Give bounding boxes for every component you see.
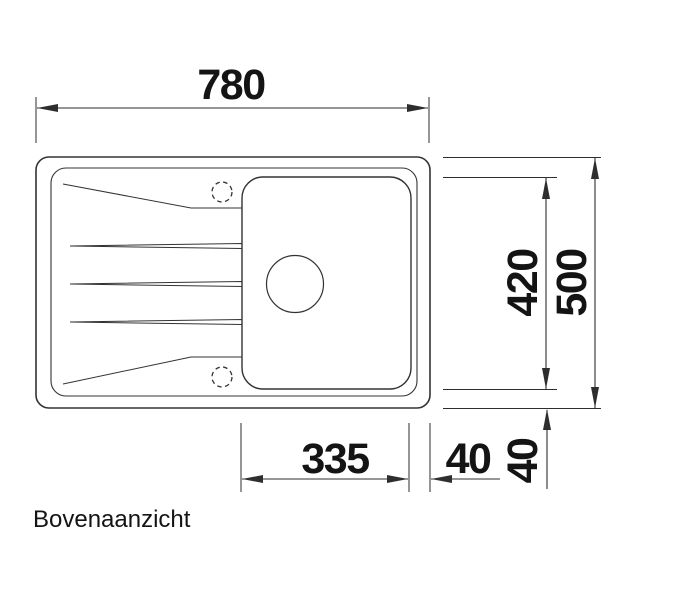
drain-hole xyxy=(267,256,324,313)
drainboard-grooves xyxy=(63,184,242,384)
groove-top-wedge xyxy=(63,184,242,208)
dim-overall-depth: 500 xyxy=(548,158,599,408)
tap-hole-bottom xyxy=(212,367,232,387)
dim-780-arrow-right xyxy=(407,104,428,112)
sink-outer-edge xyxy=(36,157,430,408)
dim-420-arrow-top xyxy=(542,178,550,199)
dim-780-arrow-left xyxy=(37,104,58,112)
groove-line-2 xyxy=(70,282,242,287)
dim-335-arrow-left xyxy=(242,475,263,483)
dim-40v-label: 40 xyxy=(499,438,547,483)
groove-line-3 xyxy=(70,320,242,325)
sink-top-view-drawing: 780 420 500 xyxy=(0,0,689,600)
dim-500-arrow-bottom xyxy=(591,387,599,408)
dim-inner-depth: 420 xyxy=(499,178,550,389)
dim-bowl-bottom-offset: 40 xyxy=(499,409,551,489)
dim-40h-label: 40 xyxy=(446,435,491,483)
dim-overall-width: 780 xyxy=(36,61,429,143)
groove-line-1 xyxy=(70,244,242,249)
tap-hole-top xyxy=(212,182,232,202)
sink-bowl xyxy=(242,177,411,389)
sink-body xyxy=(36,157,430,408)
dim-420-label: 420 xyxy=(499,249,547,317)
groove-bottom-wedge xyxy=(63,357,242,384)
dim-bowl-side-offset: 40 xyxy=(431,435,500,483)
view-title: Bovenaanzicht xyxy=(33,506,191,533)
dim-335-label: 335 xyxy=(301,435,369,483)
dim-bowl-width: 335 xyxy=(241,423,430,492)
dim-500-label: 500 xyxy=(548,249,596,317)
dim-420-arrow-bottom xyxy=(542,368,550,389)
dim-780-label: 780 xyxy=(197,61,265,109)
dim-40v-arrow xyxy=(543,409,551,430)
dim-500-arrow-top xyxy=(591,158,599,179)
technical-drawing-page: 780 420 500 xyxy=(0,0,689,600)
dim-335-arrow-right xyxy=(387,475,408,483)
